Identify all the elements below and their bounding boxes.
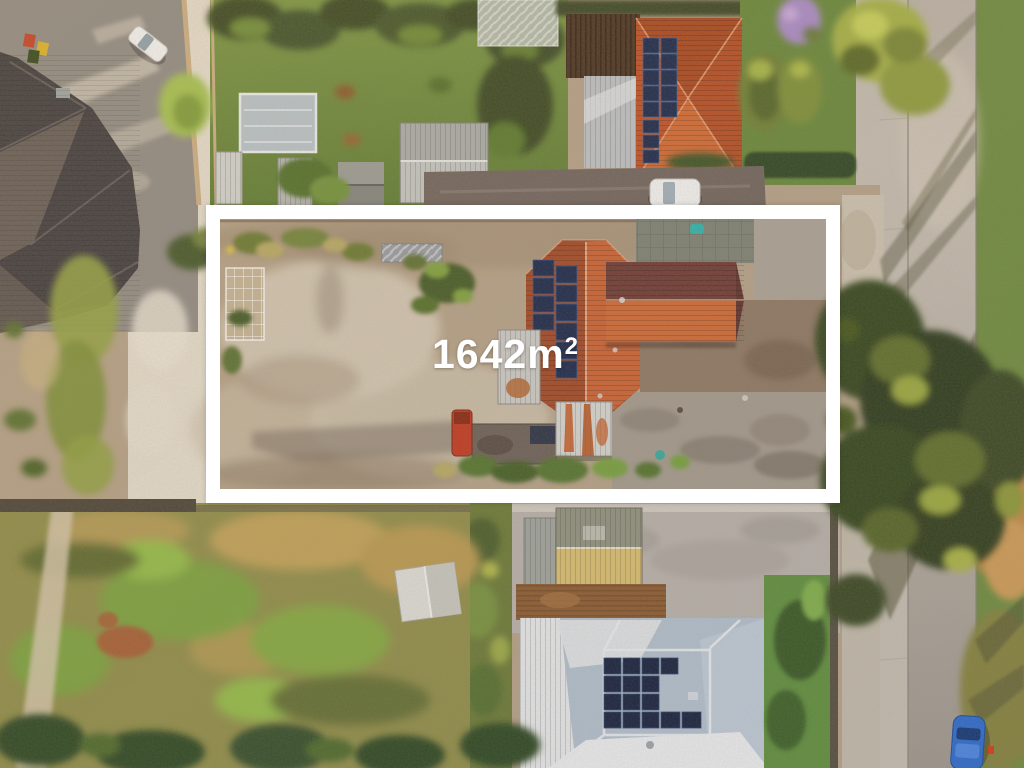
aerial-property-photo: 1642m2 (0, 0, 1024, 768)
lot-area-label: 1642m2 (330, 334, 680, 375)
area-exponent: 2 (565, 333, 578, 360)
area-value: 1642m (432, 331, 565, 377)
